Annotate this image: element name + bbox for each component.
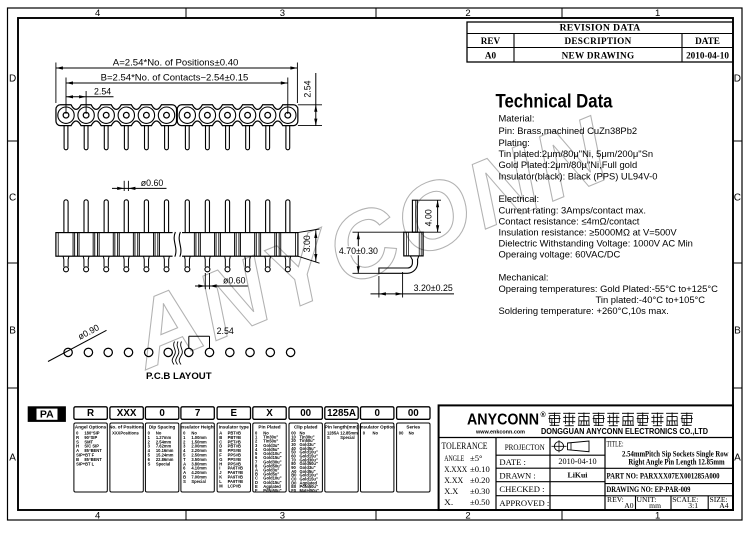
svg-text:Series: Series bbox=[406, 425, 420, 430]
svg-text:DRAWING NO: EP-PAR-009: DRAWING NO: EP-PAR-009 bbox=[607, 484, 691, 494]
svg-text:2: 2 bbox=[465, 8, 470, 19]
svg-text:Current rating: 3Amps/contact: Current rating: 3Amps/contact max. bbox=[499, 204, 646, 215]
svg-text:Tin plated:2μm/80μ"Ni, 5μm/200: Tin plated:2μm/80μ"Ni, 5μm/200μ"Sn bbox=[499, 148, 654, 159]
svg-text:ø0.60: ø0.60 bbox=[141, 178, 164, 188]
svg-text:Electrical:: Electrical: bbox=[499, 193, 540, 204]
svg-text:Matel50u": Matel50u" bbox=[300, 488, 320, 493]
svg-text:R: R bbox=[87, 408, 94, 419]
svg-text:X.XX: X.XX bbox=[444, 475, 464, 485]
svg-text:2.54: 2.54 bbox=[217, 326, 234, 336]
svg-text:±0.30: ±0.30 bbox=[470, 486, 490, 496]
svg-text:TITLE:: TITLE: bbox=[607, 440, 624, 449]
svg-text:No: No bbox=[409, 431, 415, 436]
svg-text:ø0.60: ø0.60 bbox=[223, 275, 246, 285]
svg-text:Material:: Material: bbox=[499, 113, 535, 124]
svg-text:Pin Plated: Pin Plated bbox=[258, 425, 280, 430]
svg-text:Right Angle Pin Length 12.85mm: Right Angle Pin Length 12.85mm bbox=[628, 457, 724, 466]
svg-text:F0: F0 bbox=[291, 488, 297, 493]
svg-text:X.: X. bbox=[444, 497, 453, 507]
svg-text:LiKui: LiKui bbox=[568, 471, 589, 480]
svg-text:Special: Special bbox=[340, 435, 354, 440]
svg-text:Insulator Height: Insulator Height bbox=[180, 425, 215, 430]
svg-text:X.XXX: X.XXX bbox=[444, 464, 468, 474]
svg-text:REV: REV bbox=[481, 36, 501, 46]
svg-text:P.C.B LAYOUT: P.C.B LAYOUT bbox=[146, 371, 212, 382]
svg-text:0: 0 bbox=[159, 408, 165, 419]
svg-text:DATE :: DATE : bbox=[499, 457, 526, 467]
svg-text:2: 2 bbox=[465, 510, 470, 521]
svg-text:2010-04-10: 2010-04-10 bbox=[686, 51, 729, 61]
svg-text:No. of Positions: No. of Positions bbox=[109, 425, 144, 430]
svg-text:4: 4 bbox=[95, 510, 100, 521]
svg-text:1: 1 bbox=[655, 510, 660, 521]
svg-text:S: S bbox=[327, 435, 330, 440]
svg-text:2.54: 2.54 bbox=[94, 86, 111, 96]
svg-text:±0.10: ±0.10 bbox=[470, 464, 490, 474]
svg-text:Pin length(mm): Pin length(mm) bbox=[325, 425, 359, 430]
svg-text:00: 00 bbox=[300, 408, 311, 419]
svg-text:PART NO: PARXXX07EX001285A000: PART NO: PARXXX07EX001285A000 bbox=[607, 471, 720, 481]
svg-text:Technical Data: Technical Data bbox=[496, 92, 613, 113]
svg-text:E: E bbox=[231, 408, 238, 419]
svg-text:3: 3 bbox=[280, 510, 285, 521]
svg-text:X: X bbox=[266, 408, 273, 419]
svg-text:D: D bbox=[734, 74, 741, 85]
svg-text:LCP#B: LCP#B bbox=[228, 483, 241, 488]
svg-text:Dielectric Withstanding Voltag: Dielectric Withstanding Voltage: 1000V A… bbox=[499, 238, 693, 249]
svg-text:1: 1 bbox=[655, 8, 660, 19]
svg-text:NEW DRAWING: NEW DRAWING bbox=[562, 51, 635, 61]
svg-text:Contact resistance: ≤4mΩ/conta: Contact resistance: ≤4mΩ/contact bbox=[499, 215, 640, 226]
svg-text:00: 00 bbox=[408, 408, 419, 419]
svg-text:3:1: 3:1 bbox=[688, 501, 698, 510]
svg-text:7: 7 bbox=[195, 408, 201, 419]
svg-text:M: M bbox=[219, 483, 223, 488]
svg-text:Insulation resistance: ≥5000MΩ: Insulation resistance: ≥5000MΩ at V=500V bbox=[499, 226, 678, 237]
svg-text:Special: Special bbox=[191, 479, 205, 484]
svg-text:±5°: ±5° bbox=[470, 453, 483, 463]
svg-text:A0: A0 bbox=[624, 501, 633, 510]
svg-text:Insulator type: Insulator type bbox=[219, 425, 250, 430]
svg-text:4.00: 4.00 bbox=[423, 209, 433, 226]
svg-text:ANYCONN: ANYCONN bbox=[467, 412, 539, 429]
svg-text:Positions: Positions bbox=[120, 431, 139, 436]
svg-text:PROJECTON: PROJECTON bbox=[505, 442, 546, 452]
svg-text:1285A: 1285A bbox=[327, 408, 356, 419]
svg-text:A: A bbox=[734, 453, 741, 464]
svg-text:www.enkconn.com: www.enkconn.com bbox=[475, 430, 525, 436]
svg-text:±0.20: ±0.20 bbox=[470, 475, 490, 485]
svg-text:DATE: DATE bbox=[695, 36, 720, 46]
svg-text:Pin: Brass,machined CuZn38Pb2: Pin: Brass,machined CuZn38Pb2 bbox=[499, 125, 638, 136]
svg-text:X.X: X.X bbox=[444, 486, 459, 496]
svg-text:DONGGUAN ANYCONN ELECTRONICS: DONGGUAN ANYCONN ELECTRONICS CO.,LTD bbox=[541, 427, 708, 436]
svg-text:Operaing temperatures: Gold Pl: Operaing temperatures: Gold Plated:-55°C… bbox=[499, 283, 719, 294]
svg-text:DRAWN :: DRAWN : bbox=[499, 471, 535, 481]
svg-text:REVISION DATA: REVISION DATA bbox=[559, 23, 640, 34]
svg-text:PdNi50u": PdNi50u" bbox=[263, 488, 281, 493]
svg-text:±0.50: ±0.50 bbox=[470, 497, 490, 507]
svg-text:ANGLE: ANGLE bbox=[444, 453, 464, 463]
svg-text:REV:: REV: bbox=[607, 495, 624, 504]
svg-text:C: C bbox=[9, 193, 16, 204]
svg-text:CHECKED :: CHECKED : bbox=[499, 484, 544, 494]
svg-text:Soldering temperature: +260°C,: Soldering temperature: +260°C,10s max. bbox=[499, 305, 669, 316]
svg-text:®: ® bbox=[541, 411, 547, 419]
svg-text:A4: A4 bbox=[719, 501, 728, 510]
svg-text:SIP+BT L: SIP+BT L bbox=[76, 461, 95, 466]
svg-text:C: C bbox=[734, 193, 741, 204]
svg-text:Mechanical:: Mechanical: bbox=[499, 272, 549, 283]
svg-text:XXX: XXX bbox=[112, 431, 120, 436]
svg-text:3.00: 3.00 bbox=[302, 235, 312, 252]
svg-text:2.54: 2.54 bbox=[302, 80, 312, 97]
svg-text:XXX: XXX bbox=[117, 408, 137, 419]
svg-text:3.20±0.25: 3.20±0.25 bbox=[414, 283, 453, 293]
svg-text:Operaing voltage: 60VAC/DC: Operaing voltage: 60VAC/DC bbox=[499, 249, 621, 260]
svg-text:S: S bbox=[148, 461, 151, 466]
svg-text:DESCRIPTION: DESCRIPTION bbox=[564, 36, 631, 46]
svg-text:Angel Options: Angel Options bbox=[75, 425, 107, 430]
svg-text:B: B bbox=[734, 326, 741, 337]
svg-text:Gold Plated:2μm/80μ"Ni,Full go: Gold Plated:2μm/80μ"Ni,Full gold bbox=[499, 159, 638, 170]
svg-text:B=2.54*No. of Contacts−2.54±: B=2.54*No. of Contacts−2.54±0.15 bbox=[101, 72, 249, 82]
svg-text:TOLERANCE: TOLERANCE bbox=[442, 441, 488, 451]
svg-text:00: 00 bbox=[399, 431, 404, 436]
svg-text:Plating:: Plating: bbox=[499, 137, 530, 148]
svg-text:A0: A0 bbox=[485, 51, 497, 61]
svg-text:B: B bbox=[9, 326, 16, 337]
svg-text:Clip plated: Clip plated bbox=[294, 425, 318, 430]
svg-text:APPROVED :: APPROVED : bbox=[499, 498, 549, 508]
svg-text:A: A bbox=[9, 453, 16, 464]
svg-text:4: 4 bbox=[95, 8, 100, 19]
svg-text:3: 3 bbox=[280, 8, 285, 19]
svg-text:4.70±0.30: 4.70±0.30 bbox=[339, 246, 378, 256]
svg-text:2010-04-10: 2010-04-10 bbox=[558, 457, 596, 466]
svg-text:PA: PA bbox=[40, 409, 54, 421]
svg-text:A=2.54*No. of Positions±0.40: A=2.54*No. of Positions±0.40 bbox=[113, 58, 239, 68]
svg-text:0: 0 bbox=[374, 408, 380, 419]
svg-text:Tin plated:-40°C to+105°C: Tin plated:-40°C to+105°C bbox=[596, 294, 706, 305]
svg-text:Insulator(black): Black (PPS): Insulator(black): Black (PPS) UL94V-0 bbox=[499, 171, 658, 182]
svg-text:D: D bbox=[9, 74, 16, 85]
svg-text:mm: mm bbox=[649, 501, 661, 510]
svg-text:Insulator Option: Insulator Option bbox=[359, 425, 395, 430]
svg-text:S: S bbox=[183, 479, 186, 484]
svg-text:No: No bbox=[373, 431, 379, 436]
svg-text:Dip Spacing: Dip Spacing bbox=[149, 425, 176, 430]
svg-text:Special: Special bbox=[156, 461, 170, 466]
